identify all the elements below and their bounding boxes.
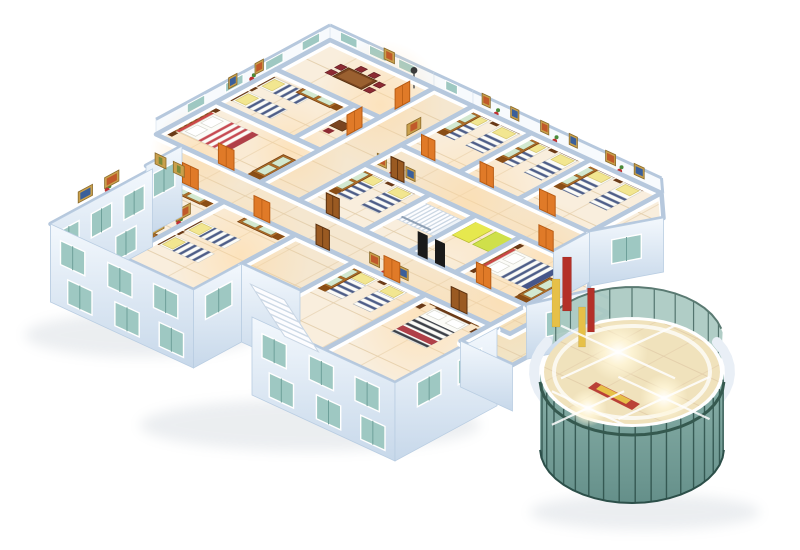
atrium-column <box>588 288 595 332</box>
scene-root <box>25 25 760 530</box>
black-panel <box>435 239 445 268</box>
flower-vase <box>620 165 624 169</box>
flower-vase <box>555 135 559 139</box>
floor-lamp <box>411 67 418 74</box>
atrium-column <box>563 257 572 311</box>
black-panel <box>418 231 428 260</box>
floor-plan-stage <box>0 0 800 550</box>
floor-plan-3d-render <box>0 0 800 550</box>
atrium-column <box>579 307 586 347</box>
flower-vase <box>496 108 500 112</box>
atrium-column <box>552 279 560 327</box>
